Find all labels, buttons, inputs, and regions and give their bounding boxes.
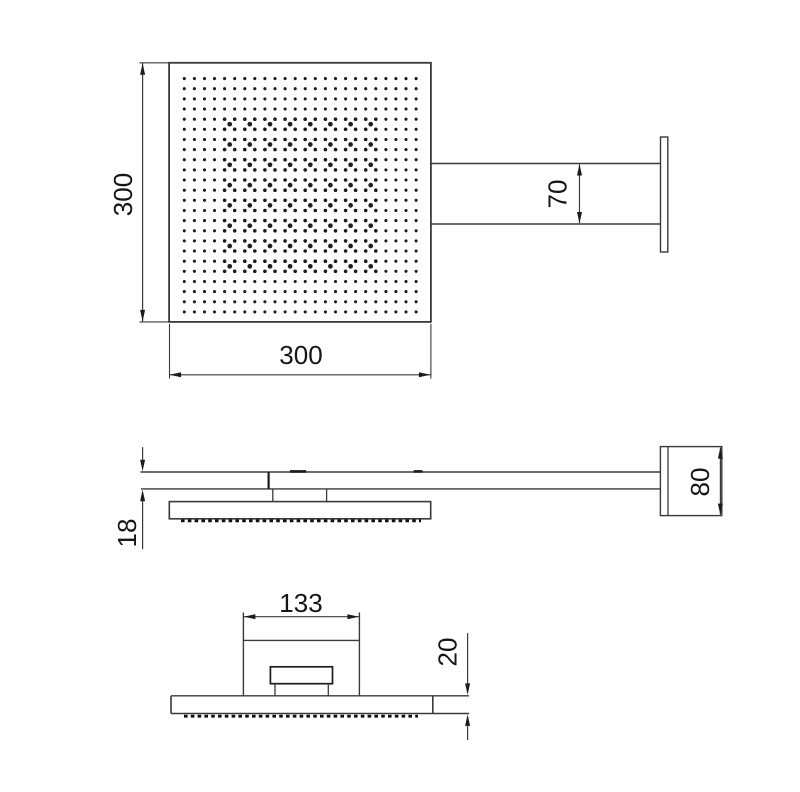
svg-text:300: 300 <box>108 173 138 216</box>
svg-text:80: 80 <box>685 468 715 497</box>
svg-text:18: 18 <box>112 519 142 548</box>
svg-text:133: 133 <box>279 588 322 618</box>
svg-text:20: 20 <box>433 638 463 667</box>
svg-text:70: 70 <box>542 180 572 209</box>
svg-text:300: 300 <box>279 340 322 370</box>
